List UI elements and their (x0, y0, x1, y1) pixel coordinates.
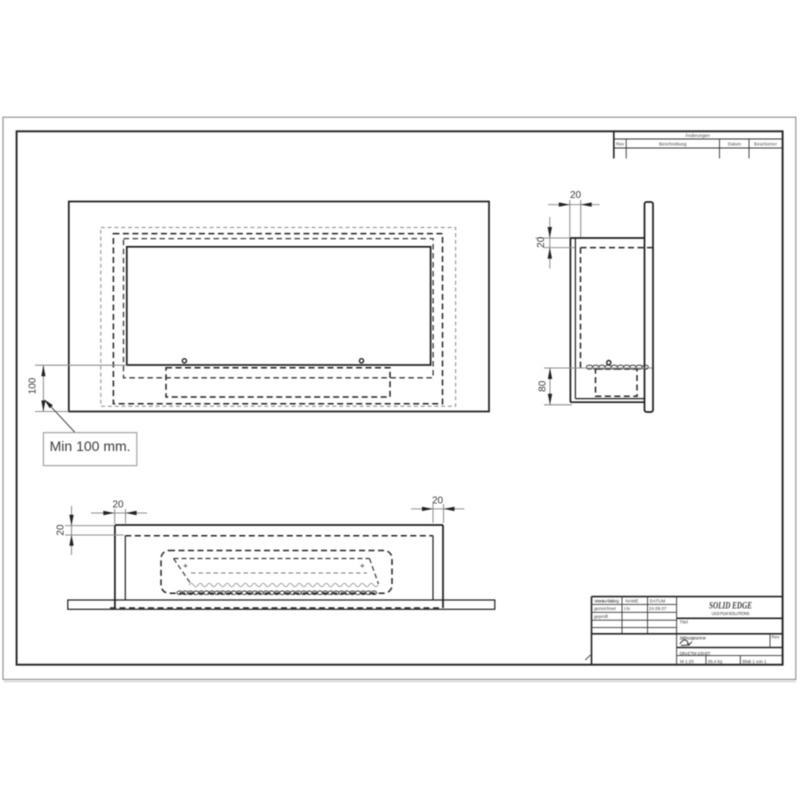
svg-text:t.lo: t.lo (624, 606, 631, 611)
svg-text:Rev: Rev (772, 635, 781, 640)
svg-text:20: 20 (570, 190, 582, 201)
svg-text:DIN-ETM-100-BT: DIN-ETM-100-BT (680, 651, 711, 656)
svg-text:Änderungen: Änderungen (685, 132, 710, 138)
svg-text:DATUM: DATUM (650, 598, 666, 603)
svg-text:20: 20 (536, 236, 547, 248)
svg-text:gezeichnet: gezeichnet (594, 606, 617, 611)
svg-text:Beschreibung: Beschreibung (659, 142, 687, 147)
svg-text:Rev: Rev (616, 142, 625, 147)
svg-text:Blatt 1 von 1: Blatt 1 von 1 (743, 659, 767, 664)
svg-text:geprüft: geprüft (594, 614, 609, 619)
svg-text:39,4 kg: 39,4 kg (708, 659, 723, 664)
svg-text:20: 20 (56, 524, 67, 536)
svg-text:Bearbeiter: Bearbeiter (754, 142, 778, 147)
svg-text:Min 100 mm.: Min 100 mm. (50, 438, 131, 454)
svg-text:UGS PLM SOLUTIONS: UGS PLM SOLUTIONS (712, 611, 750, 616)
svg-text:80: 80 (538, 380, 549, 392)
svg-text:20: 20 (432, 495, 444, 506)
svg-text:24.09.07: 24.09.07 (649, 606, 667, 611)
svg-text:Verantw. Abteilung: Verantw. Abteilung (594, 599, 619, 604)
svg-text:SOLID EDGE: SOLID EDGE (709, 602, 752, 612)
svg-text:Datum: Datum (728, 142, 742, 147)
svg-text:20: 20 (112, 499, 124, 510)
svg-text:100: 100 (28, 377, 39, 394)
svg-text:M 1:20: M 1:20 (680, 659, 694, 664)
svg-text:NAME: NAME (625, 598, 638, 603)
svg-text:Titel: Titel (680, 619, 688, 624)
